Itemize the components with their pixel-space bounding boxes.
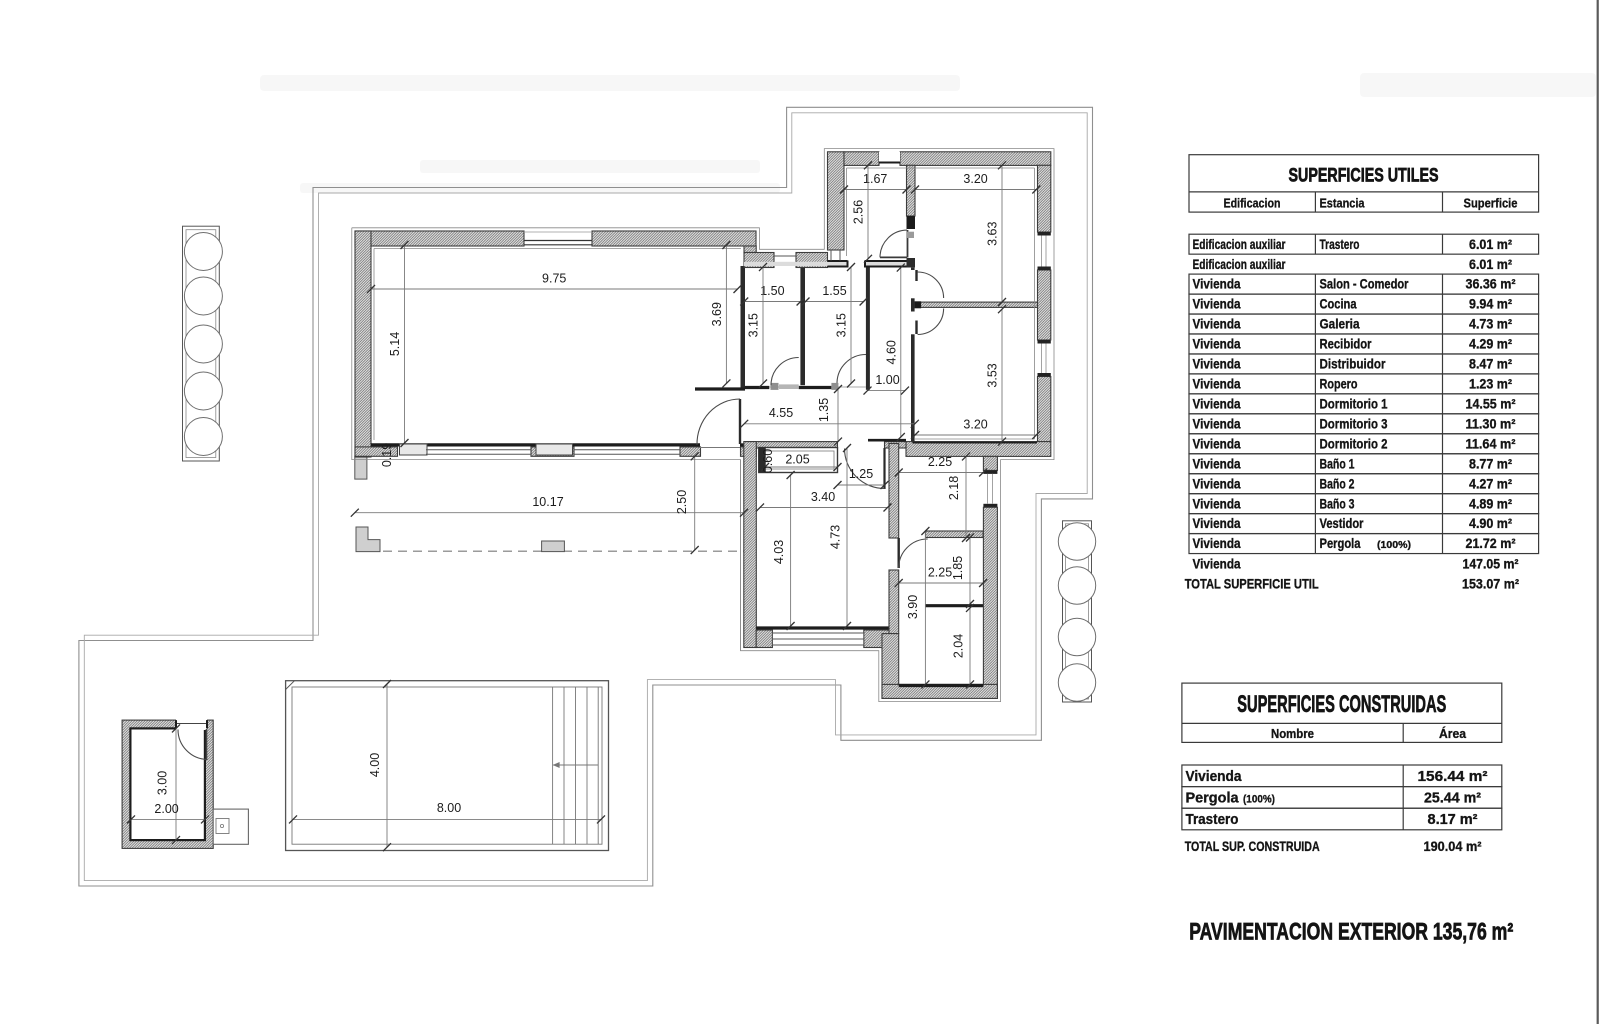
- svg-text:Vivienda: Vivienda: [1193, 536, 1241, 551]
- svg-text:4.89 m²: 4.89 m²: [1469, 496, 1512, 511]
- svg-text:1.67: 1.67: [863, 172, 887, 186]
- svg-text:4.60: 4.60: [884, 340, 898, 364]
- svg-text:0.19: 0.19: [380, 443, 394, 467]
- svg-text:Vivienda: Vivienda: [1193, 397, 1241, 412]
- svg-text:Vivienda: Vivienda: [1193, 436, 1241, 451]
- svg-text:Vivienda: Vivienda: [1193, 476, 1241, 491]
- svg-text:2.18: 2.18: [947, 476, 961, 500]
- svg-text:Vivienda: Vivienda: [1186, 769, 1243, 785]
- svg-text:Trastero: Trastero: [1186, 812, 1239, 828]
- svg-text:2.56: 2.56: [852, 200, 866, 224]
- svg-text:2.50: 2.50: [675, 490, 689, 514]
- svg-text:2.05: 2.05: [785, 453, 809, 467]
- svg-text:Dormitorio 2: Dormitorio 2: [1320, 436, 1388, 451]
- svg-text:11.30 m²: 11.30 m²: [1466, 416, 1516, 431]
- svg-text:4.90 m²: 4.90 m²: [1469, 516, 1512, 531]
- svg-text:PAVIMENTACION EXTERIOR 135,76: PAVIMENTACION EXTERIOR 135,76 m²: [1189, 919, 1513, 946]
- svg-text:11.64 m²: 11.64 m²: [1466, 436, 1516, 451]
- svg-text:(100%): (100%): [1243, 794, 1275, 806]
- svg-text:Vivienda: Vivienda: [1193, 317, 1241, 332]
- svg-text:4.00: 4.00: [368, 753, 382, 777]
- svg-text:8.47 m²: 8.47 m²: [1469, 357, 1512, 372]
- svg-text:3.20: 3.20: [963, 172, 987, 186]
- svg-text:SUPERFICIES CONSTRUIDAS: SUPERFICIES CONSTRUIDAS: [1237, 691, 1446, 718]
- svg-text:Recibidor: Recibidor: [1320, 337, 1373, 352]
- svg-text:Vivienda: Vivienda: [1193, 516, 1241, 531]
- svg-text:Baño 1: Baño 1: [1320, 456, 1355, 471]
- svg-text:1.35: 1.35: [817, 398, 831, 422]
- svg-text:9.75: 9.75: [542, 272, 566, 286]
- svg-text:2.25: 2.25: [928, 455, 952, 469]
- svg-text:Baño 3: Baño 3: [1320, 496, 1355, 511]
- svg-text:10.17: 10.17: [532, 495, 563, 509]
- svg-text:Galeria: Galeria: [1320, 317, 1360, 332]
- svg-text:Pergola: Pergola: [1320, 536, 1361, 551]
- svg-text:(100%): (100%): [1377, 539, 1411, 551]
- svg-text:4.73: 4.73: [829, 525, 843, 549]
- svg-text:3.20: 3.20: [963, 418, 987, 432]
- svg-text:8.17 m²: 8.17 m²: [1428, 812, 1478, 828]
- svg-text:Ropero: Ropero: [1320, 377, 1358, 392]
- svg-text:Dormitorio 1: Dormitorio 1: [1320, 397, 1388, 412]
- svg-text:1.25: 1.25: [849, 467, 873, 481]
- svg-text:1.85: 1.85: [951, 556, 965, 580]
- svg-text:2.04: 2.04: [952, 634, 966, 658]
- svg-text:Vivienda: Vivienda: [1193, 416, 1241, 431]
- svg-text:4.03: 4.03: [772, 540, 786, 564]
- svg-text:190.04 m²: 190.04 m²: [1424, 839, 1482, 854]
- svg-text:Vivienda: Vivienda: [1193, 337, 1241, 352]
- svg-text:3.90: 3.90: [906, 595, 920, 619]
- svg-text:Salon - Comedor: Salon - Comedor: [1320, 277, 1410, 292]
- svg-text:36.36 m²: 36.36 m²: [1466, 277, 1516, 292]
- svg-text:Área: Área: [1439, 726, 1467, 741]
- svg-text:4.27 m²: 4.27 m²: [1469, 476, 1512, 491]
- svg-text:147.05 m²: 147.05 m²: [1463, 557, 1519, 572]
- svg-text:Edificacion auxiliar: Edificacion auxiliar: [1193, 257, 1287, 272]
- svg-text:TOTAL SUPERFICIE UTIL: TOTAL SUPERFICIE UTIL: [1185, 577, 1319, 592]
- svg-text:Vivienda: Vivienda: [1193, 357, 1241, 372]
- svg-text:4.73 m²: 4.73 m²: [1469, 317, 1512, 332]
- svg-text:Estancia: Estancia: [1320, 196, 1366, 211]
- svg-text:6.01 m²: 6.01 m²: [1469, 237, 1512, 252]
- svg-text:Vestidor: Vestidor: [1320, 516, 1365, 531]
- svg-text:0.60: 0.60: [761, 449, 775, 473]
- svg-text:2.00: 2.00: [154, 802, 178, 816]
- svg-text:3.53: 3.53: [986, 363, 1000, 387]
- svg-text:1.50: 1.50: [760, 284, 784, 298]
- svg-text:3.15: 3.15: [835, 313, 849, 337]
- svg-text:Vivienda: Vivienda: [1193, 377, 1241, 392]
- svg-text:21.72 m²: 21.72 m²: [1466, 536, 1516, 551]
- svg-text:2.25: 2.25: [928, 566, 952, 580]
- svg-text:Vivienda: Vivienda: [1193, 496, 1241, 511]
- svg-text:Superficie: Superficie: [1464, 196, 1518, 211]
- svg-text:4.29 m²: 4.29 m²: [1469, 337, 1512, 352]
- svg-text:5.14: 5.14: [388, 332, 402, 356]
- svg-text:8.00: 8.00: [437, 801, 461, 815]
- svg-text:TOTAL SUP. CONSTRUIDA: TOTAL SUP. CONSTRUIDA: [1185, 839, 1320, 854]
- svg-text:1.00: 1.00: [875, 373, 899, 387]
- svg-text:SUPERFICIES UTILES: SUPERFICIES UTILES: [1289, 165, 1439, 187]
- svg-text:9.94 m²: 9.94 m²: [1469, 297, 1512, 312]
- svg-text:Vivienda: Vivienda: [1193, 297, 1241, 312]
- svg-text:1.23 m²: 1.23 m²: [1469, 377, 1512, 392]
- svg-text:Edificacion: Edificacion: [1224, 196, 1281, 211]
- svg-text:Cocina: Cocina: [1320, 297, 1357, 312]
- svg-text:3.00: 3.00: [156, 771, 170, 795]
- svg-text:3.63: 3.63: [986, 221, 1000, 245]
- svg-text:25.44 m²: 25.44 m²: [1424, 791, 1481, 807]
- svg-text:14.55 m²: 14.55 m²: [1466, 397, 1516, 412]
- svg-text:156.44 m²: 156.44 m²: [1418, 769, 1488, 785]
- svg-text:Baño 2: Baño 2: [1320, 476, 1355, 491]
- svg-text:Dormitorio 3: Dormitorio 3: [1320, 416, 1388, 431]
- svg-text:6.01 m²: 6.01 m²: [1469, 257, 1512, 272]
- svg-text:3.15: 3.15: [747, 313, 761, 337]
- svg-text:Edificacion auxiliar: Edificacion auxiliar: [1193, 237, 1287, 252]
- svg-text:153.07 m²: 153.07 m²: [1462, 577, 1519, 592]
- svg-text:Pergola: Pergola: [1186, 791, 1240, 807]
- svg-text:8.77 m²: 8.77 m²: [1469, 456, 1512, 471]
- svg-text:4.55: 4.55: [769, 406, 793, 420]
- svg-text:Distribuidor: Distribuidor: [1320, 357, 1387, 372]
- svg-text:3.40: 3.40: [811, 490, 835, 504]
- svg-text:Nombre: Nombre: [1271, 726, 1314, 741]
- svg-text:Vivienda: Vivienda: [1193, 557, 1241, 572]
- svg-text:3.69: 3.69: [710, 302, 724, 326]
- svg-text:Trastero: Trastero: [1320, 237, 1360, 252]
- svg-text:Vivienda: Vivienda: [1193, 456, 1241, 471]
- svg-text:Vivienda: Vivienda: [1193, 277, 1241, 292]
- svg-text:1.55: 1.55: [822, 284, 846, 298]
